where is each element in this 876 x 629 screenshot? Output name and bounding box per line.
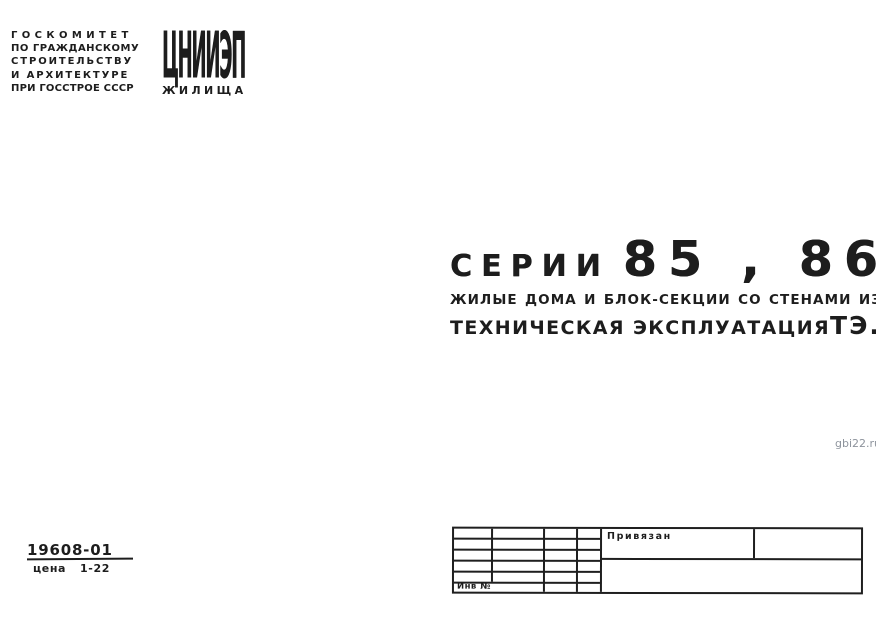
catalog-rule xyxy=(27,558,133,561)
site-watermark: gbi22.ru xyxy=(835,437,876,450)
price-label: цена xyxy=(33,562,66,575)
logo-main-text: ЦНИИЭП xyxy=(162,26,245,91)
stamp-column-line xyxy=(491,529,493,582)
stamp-row-line xyxy=(454,538,600,540)
cniiep-logo: ЦНИИЭП ЖИЛИЩА xyxy=(162,20,242,100)
stamp-row-line xyxy=(600,558,861,560)
price-value: 1-22 xyxy=(80,562,110,575)
price-line: цена1-22 xyxy=(33,562,110,575)
committee-line: ПО ГРАЖДАНСКОМУ xyxy=(11,42,139,55)
committee-line: ГОСКОМИТЕТ xyxy=(11,29,139,42)
committee-line: ПРИ ГОССТРОЕ СССР xyxy=(11,82,139,95)
series-numbers: 85 , 86 xyxy=(623,231,876,288)
document-subtitle: ЖИЛЫЕ ДОМА И БЛОК-СЕКЦИИ СО СТЕНАМИ ИЗ К… xyxy=(450,292,876,308)
logo-sub-text: ЖИЛИЩА xyxy=(162,84,247,97)
stamp-row-line xyxy=(454,549,600,551)
catalog-number: 19608-01 xyxy=(27,541,113,559)
document-type-row: ТЕХНИЧЕСКАЯ ЭКСПЛУАТАЦИЯ ТЭ.1 xyxy=(450,311,863,340)
committee-block: ГОСКОМИТЕТ ПО ГРАЖДАНСКОМУ СТРОИТЕЛЬСТВУ… xyxy=(11,29,139,95)
stamp-column-line xyxy=(600,529,602,592)
document-page: ГОСКОМИТЕТ ПО ГРАЖДАНСКОМУ СТРОИТЕЛЬСТВУ… xyxy=(0,0,876,629)
committee-line: СТРОИТЕЛЬСТВУ xyxy=(11,55,139,68)
series-title: СЕРИИ85 , 86 xyxy=(450,231,876,288)
stamp-row-line xyxy=(454,560,600,562)
stamp-column-line xyxy=(543,529,545,592)
stamp-column-line xyxy=(753,529,755,558)
document-type: ТЕХНИЧЕСКАЯ ЭКСПЛУАТАЦИЯ xyxy=(450,317,830,339)
stamp-column-line xyxy=(576,529,578,592)
stamp-assigned-label: Привязан xyxy=(607,531,672,542)
stamp-row-line xyxy=(454,571,600,573)
title-block-table: Привязан Инв № xyxy=(452,527,863,595)
committee-line: И АРХИТЕКТУРЕ xyxy=(11,69,139,82)
series-label: СЕРИИ xyxy=(450,249,610,284)
document-code: ТЭ.1 xyxy=(830,311,876,340)
stamp-inventory-label: Инв № xyxy=(457,582,491,592)
